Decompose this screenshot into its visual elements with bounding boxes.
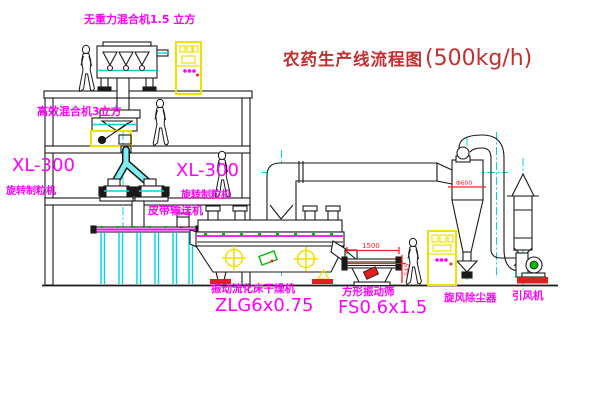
cyclone-dia-dim: Φ600 bbox=[456, 180, 472, 187]
label-granulator-model-left: XL-300 bbox=[12, 157, 75, 175]
control-cabinet-right bbox=[428, 231, 456, 285]
discharge-chute bbox=[132, 201, 144, 229]
label-granulator-model-right: XL-300 bbox=[176, 162, 239, 180]
cyclone-dust-collector: Φ600 bbox=[448, 147, 486, 278]
vibrating-screen: 1500 545 bbox=[342, 242, 411, 286]
title-chinese: 农药生产线流程图 bbox=[283, 46, 423, 70]
exhaust-duct bbox=[267, 161, 452, 220]
label-gravity-mixer: 无重力混合机1.5 立方 bbox=[84, 14, 195, 25]
label-high-eff-mixer: 高效混合机3立方 bbox=[37, 106, 122, 117]
belt-conveyor bbox=[91, 213, 204, 284]
label-granulator-name-right: 旋转制粒机 bbox=[181, 191, 231, 201]
screen-width-dim: 1500 bbox=[362, 242, 380, 250]
person-second-floor bbox=[153, 99, 168, 145]
process-flow-diagram: Φ600 bbox=[0, 0, 600, 403]
label-belt-conveyor: 皮带输送机 bbox=[148, 205, 203, 216]
label-dryer-model: ZLG6x0.75 bbox=[215, 297, 314, 315]
label-cyclone: 旋风除尘器 bbox=[444, 293, 497, 304]
granulator-left bbox=[99, 179, 134, 201]
control-cabinet-top bbox=[176, 42, 201, 94]
label-screen-model: FS0.6x1.5 bbox=[338, 299, 427, 317]
label-fan: 引风机 bbox=[512, 291, 544, 302]
title-capacity: (500kg/h) bbox=[425, 46, 532, 71]
person-top-floor bbox=[79, 45, 94, 91]
granulator-right bbox=[134, 179, 169, 201]
label-screen-name: 方形振动筛 bbox=[342, 287, 395, 298]
person-ground bbox=[406, 238, 421, 284]
gravity-free-mixer bbox=[97, 42, 168, 99]
diagram-title: 农药生产线流程图 (500kg/h) bbox=[283, 46, 532, 71]
induced-draft-fan bbox=[516, 253, 548, 284]
label-granulator-name-left: 旋转制粒机 bbox=[6, 187, 56, 197]
label-dryer-name: 振动流化床干燥机 bbox=[211, 284, 295, 295]
